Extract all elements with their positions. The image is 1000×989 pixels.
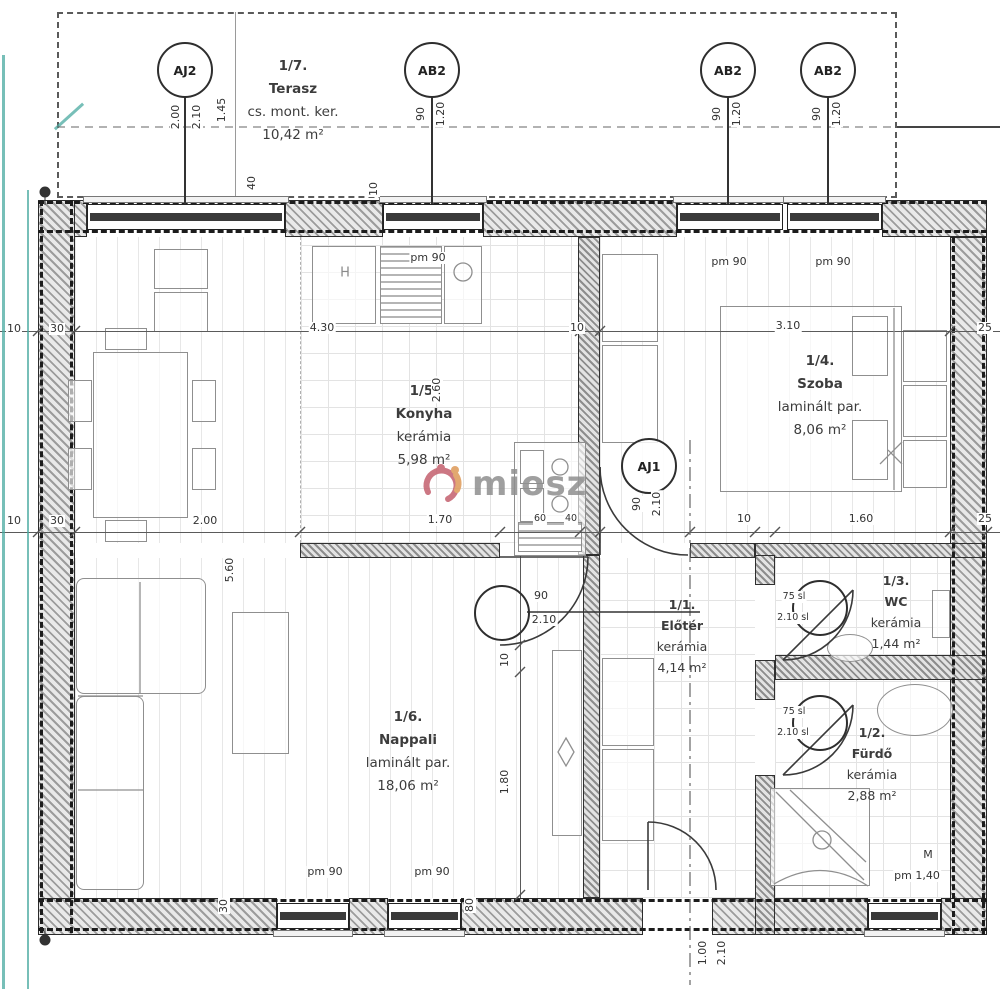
fixture-details <box>78 263 902 886</box>
door-symbols <box>500 467 853 890</box>
survey-markers <box>40 187 50 945</box>
miosz-logo-icon <box>420 462 464 506</box>
watermark: miosz <box>420 462 587 506</box>
section-lines <box>57 127 1000 985</box>
watermark-text: miosz <box>472 464 587 504</box>
floor-plan-canvas: 1.452.002.10901.20901.20901.204010pm 90p… <box>0 0 1000 989</box>
dimension-ticks <box>33 326 992 900</box>
